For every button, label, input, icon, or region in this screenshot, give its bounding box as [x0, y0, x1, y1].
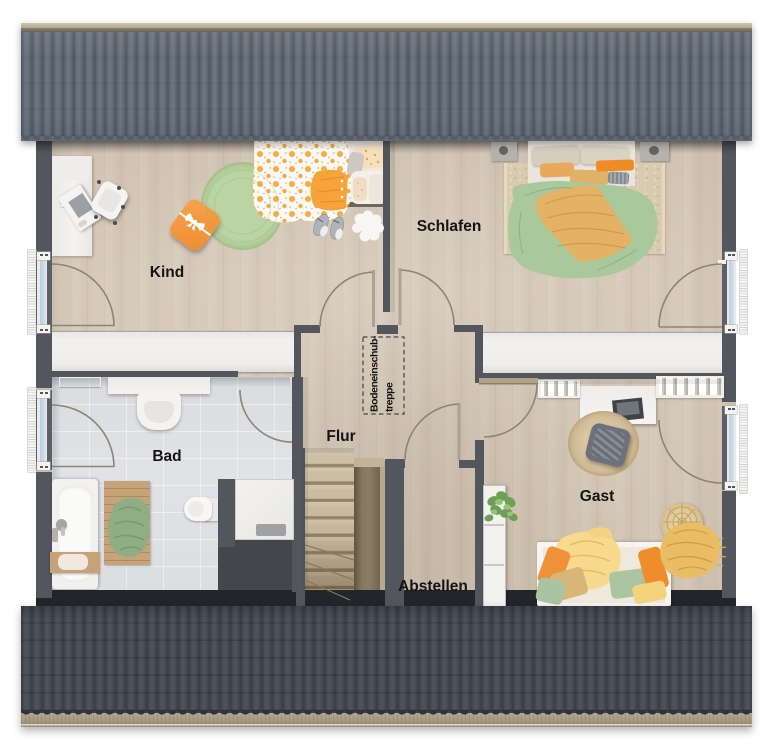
svg-text:treppe: treppe	[384, 382, 396, 412]
svg-text:Bodeneinschub-: Bodeneinschub-	[369, 335, 381, 412]
